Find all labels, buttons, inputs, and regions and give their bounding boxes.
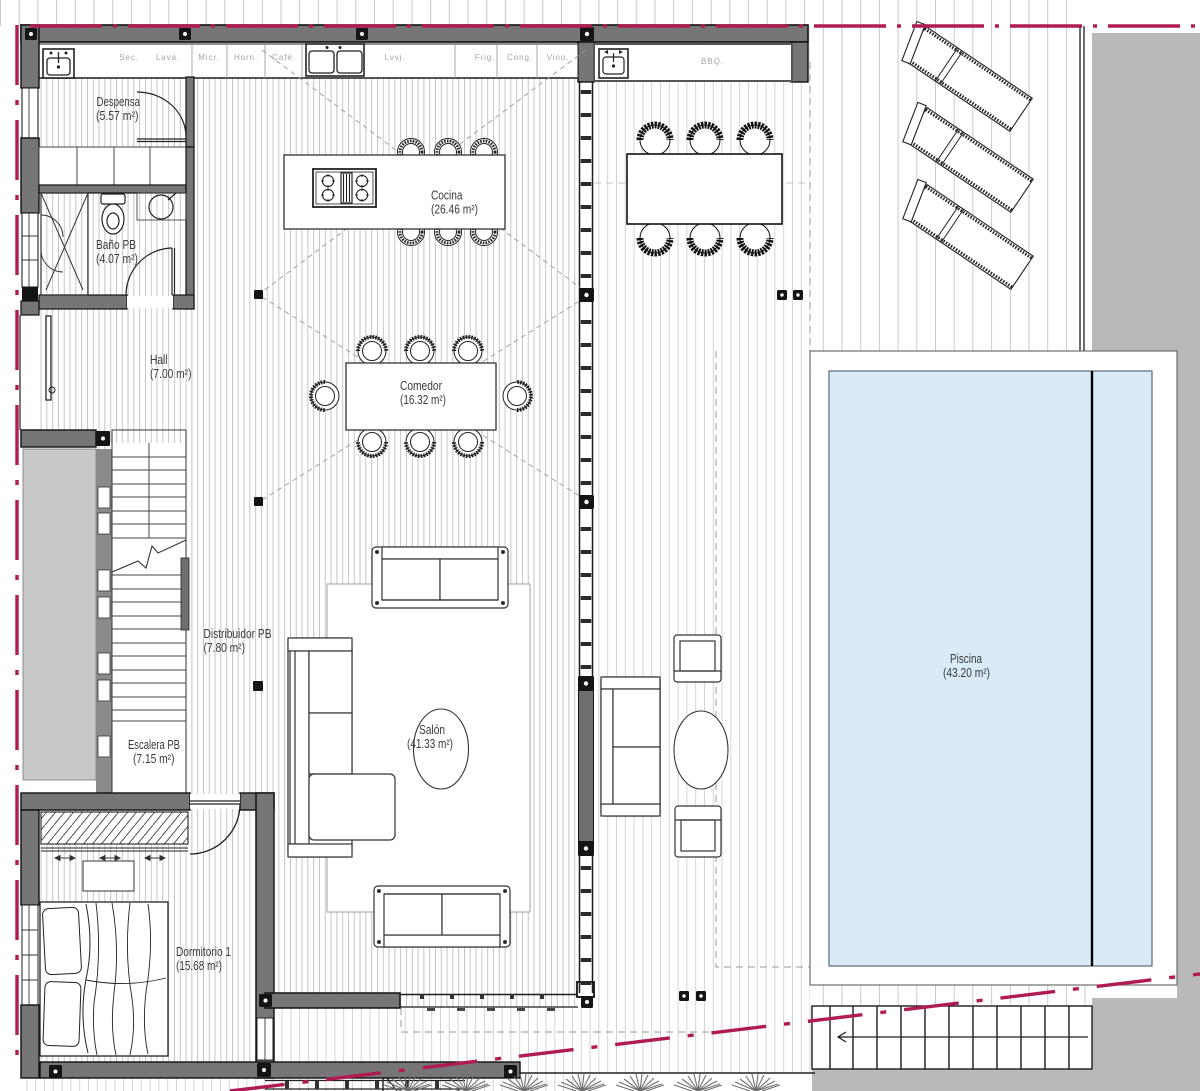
svg-text:(5.57 m²): (5.57 m²) [96,108,139,123]
svg-text:Baño PB: Baño PB [96,237,136,252]
svg-text:Distribuidor PB: Distribuidor PB [204,626,272,641]
svg-text:(43.20 m²): (43.20 m²) [943,665,990,680]
svg-text:Lava.: Lava. [156,53,180,62]
svg-text:(7.00 m²): (7.00 m²) [150,366,192,381]
svg-text:(7.15 m²): (7.15 m²) [133,751,175,766]
svg-text:(4.07 m²): (4.07 m²) [96,251,138,266]
svg-text:Cocina: Cocina [431,188,463,203]
svg-text:Cong.: Cong. [507,53,533,62]
svg-text:Micr.: Micr. [198,53,219,62]
svg-text:(7.80 m²): (7.80 m²) [204,640,246,655]
svg-text:Frig.: Frig. [475,53,496,62]
svg-text:BBQ.: BBQ. [701,57,724,66]
svg-text:(16.32 m²): (16.32 m²) [400,392,446,407]
svg-text:Sec.: Sec. [119,53,139,62]
svg-text:Hall: Hall [150,352,168,367]
svg-text:(15.68 m²): (15.68 m²) [176,958,222,973]
svg-text:Dormitorio 1: Dormitorio 1 [176,944,231,959]
svg-text:Comedor: Comedor [400,378,443,393]
svg-text:(41.33 m²): (41.33 m²) [407,736,453,751]
svg-text:Salón: Salón [419,722,445,737]
svg-text:Piscina: Piscina [950,651,983,666]
svg-text:(26.46 m²): (26.46 m²) [431,202,478,217]
svg-text:Despensa: Despensa [97,94,141,109]
svg-text:Horn.: Horn. [234,53,258,62]
svg-text:Escalera PB: Escalera PB [128,737,180,752]
svg-text:Vino.: Vino. [547,53,570,62]
svg-text:Café.: Café. [272,53,296,62]
svg-text:Lvvj.: Lvvj. [385,53,406,62]
